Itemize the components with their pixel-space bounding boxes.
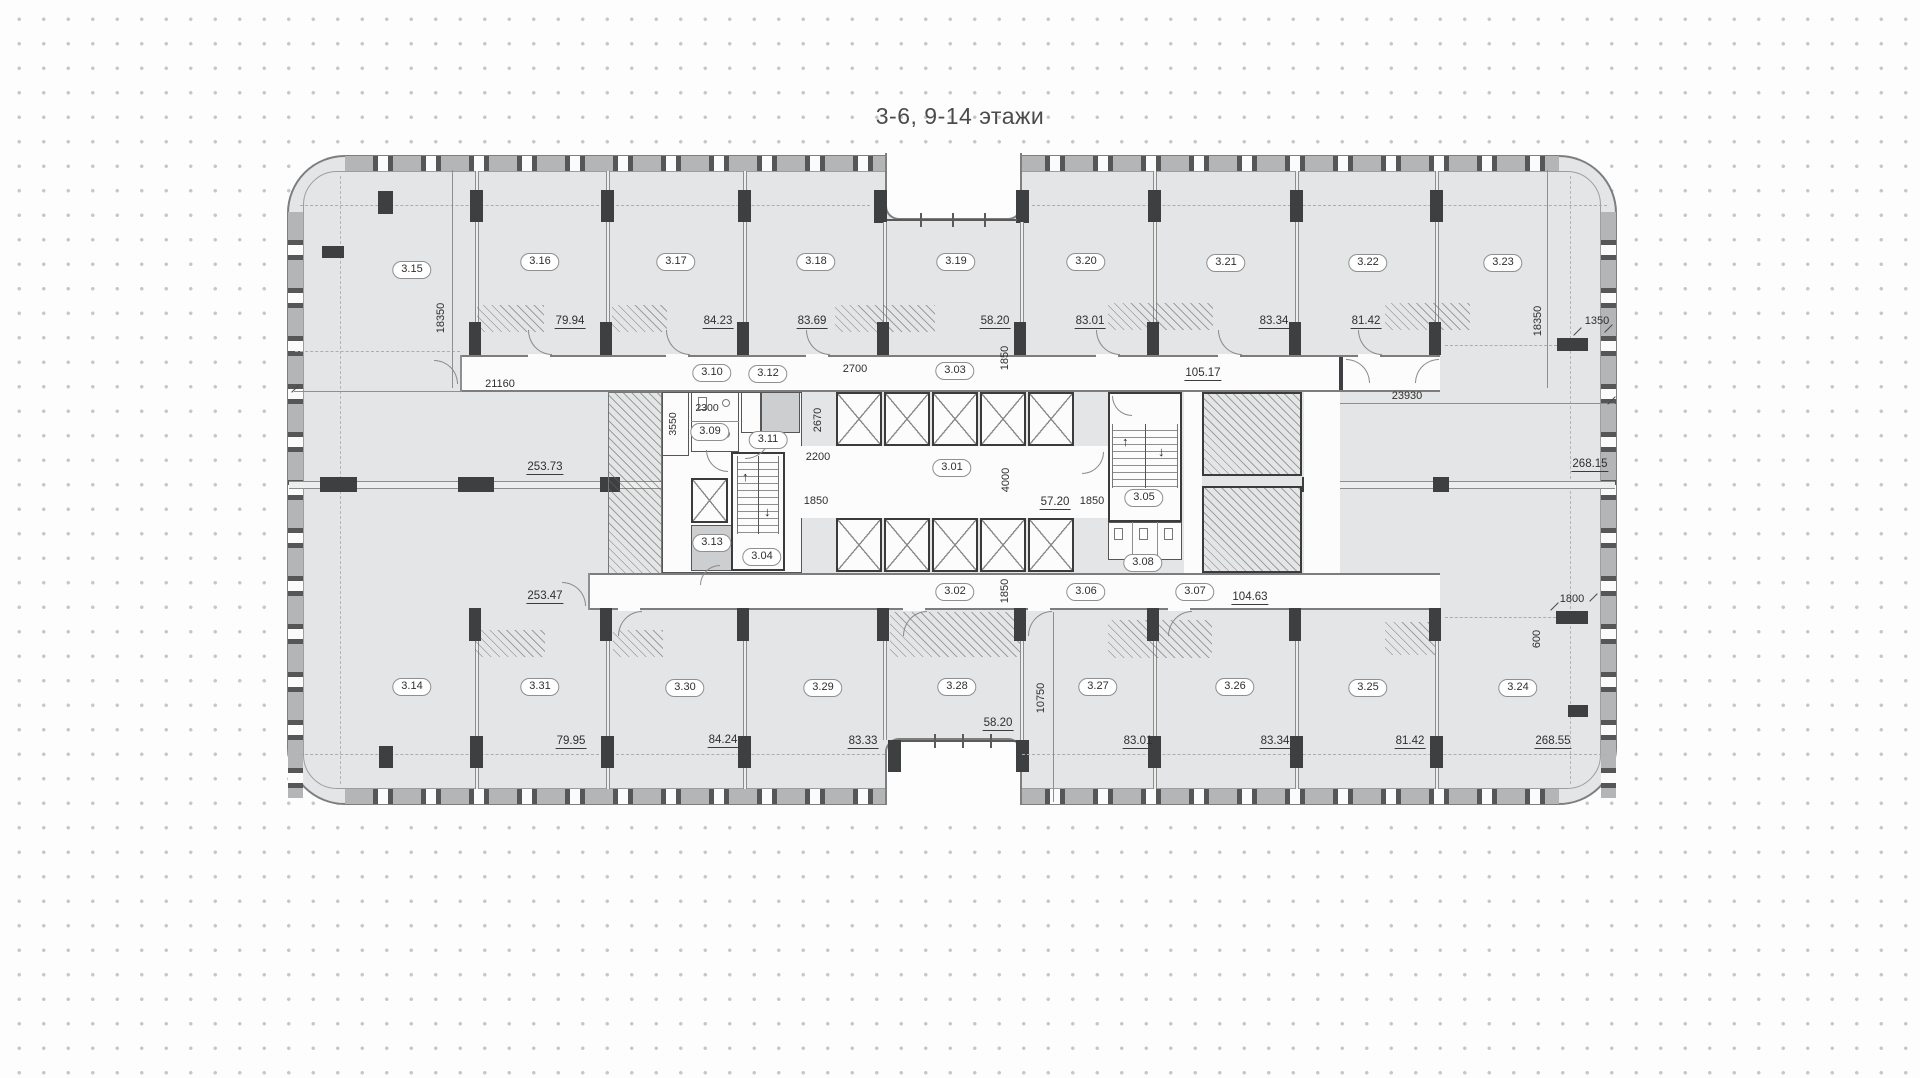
window-band-left [288,212,303,798]
stair-arrow-icon: ↑ [742,470,749,483]
pier [737,322,749,355]
elevator-hall [788,446,1078,518]
window-band-right [1601,212,1616,798]
room-label-3-24: 3.24 [1498,679,1537,697]
hatch-zone [477,305,544,332]
dim-2300: 2300 [695,402,718,414]
dim-line [1310,403,1615,404]
elevator-shaft [691,478,728,523]
railing-tick [952,213,954,227]
dim-2200: 2200 [806,451,830,463]
dim-line [1053,612,1054,802]
elevator-shaft [932,518,978,572]
room-label-3-21: 3.21 [1206,254,1245,272]
dim-1850: 1850 [999,346,1011,370]
room-label-3-01: 3.01 [932,459,971,477]
room-label-3-10: 3.10 [692,364,731,382]
pier [1014,608,1026,641]
room-label-3-16: 3.16 [520,253,559,271]
elevator-shaft [980,392,1026,446]
hatch-zone [1385,303,1470,330]
gridline [295,351,460,352]
column [601,190,614,222]
column [1557,338,1588,351]
pier [469,322,481,355]
pier [1289,322,1301,355]
stair-arrow-icon: ↓ [764,505,771,518]
area-label-3-17: 84.23 [703,315,734,329]
door-opening [1028,606,1050,611]
pier [1147,322,1159,355]
area-label-3-20: 83.01 [1075,315,1106,329]
stair-arrow-icon: ↓ [1158,445,1165,458]
area-label-3-26: 83.34 [1260,735,1291,749]
dim-23930: 23930 [1392,390,1423,402]
column [379,746,393,768]
column [470,190,483,222]
area-label-3-01: 57.20 [1040,496,1071,510]
pier [1016,190,1029,223]
area-label-3-19: 58.20 [980,315,1011,329]
door-opening [1358,354,1380,359]
pier [1147,608,1159,641]
pier [877,608,889,641]
elevator-shaft [884,392,930,446]
room-label-3-23: 3.23 [1483,254,1522,272]
wc-fixture [1114,528,1123,540]
service-room [741,392,761,433]
dim-line [1547,170,1548,388]
column [1430,190,1443,222]
column [738,190,751,222]
area-label-3-16: 79.94 [555,315,586,329]
dim-4000: 4000 [1000,468,1012,492]
stair-midline [1145,424,1146,488]
dim-1800: 1800 [1560,593,1584,605]
room-label-3-12: 3.12 [748,365,787,383]
dim-2700: 2700 [843,363,867,375]
pier [1429,322,1441,355]
room-label-3-11: 3.11 [749,431,788,449]
pier [1433,477,1449,492]
area-label-3-14: 253.47 [526,590,563,604]
door-opening [1096,354,1118,359]
room-label-3-20: 3.20 [1066,253,1105,271]
column [470,736,483,768]
door-opening [528,354,550,359]
room-label-3-05: 3.05 [1124,489,1163,507]
shaft-zone [608,392,662,574]
column [322,246,344,258]
stair-midline [758,456,759,534]
area-label-3-29: 83.33 [848,735,879,749]
pier [600,322,612,355]
room-label-3-22: 3.22 [1348,254,1387,272]
wall [460,355,462,392]
page-title: 3-6, 9-14 этажи [0,103,1920,130]
dim-1850: 1850 [999,579,1011,603]
area-label-3-24: 268.55 [1534,735,1571,749]
elevator-shaft [884,518,930,572]
pier [600,608,612,641]
pier [877,322,889,355]
pier [1429,608,1441,641]
railing [901,740,1016,742]
pier [458,477,494,492]
area-label-3-31: 79.95 [556,735,587,749]
area-label-3-22: 81.42 [1351,315,1382,329]
hatch-zone [1108,303,1213,330]
column [1568,705,1588,717]
room-label-3-28: 3.28 [937,678,976,696]
room-label-3-31: 3.31 [520,678,559,696]
room-label-3-27: 3.27 [1078,678,1117,696]
room-label-3-14: 3.14 [392,678,431,696]
area-label-corridor-bottom: 104.63 [1231,591,1268,605]
hatch-zone [612,305,667,332]
pier [1014,322,1026,355]
room-label-3-08: 3.08 [1123,554,1162,572]
room-label-3-29: 3.29 [803,679,842,697]
pier [1016,740,1029,772]
door-opening [1218,354,1240,359]
gridline [1022,754,1607,755]
room-label-3-26: 3.26 [1215,678,1254,696]
column [378,191,393,214]
dim-18350-right: 18350 [1532,306,1544,337]
hatch-zone [1108,620,1212,658]
dim-600: 600 [1531,630,1543,648]
pier [469,608,481,641]
wall [691,421,739,422]
service-room [761,392,800,433]
column [601,736,614,768]
room-label-3-09: 3.09 [690,423,729,441]
gridline [1445,617,1556,618]
hatch-zone [475,630,545,657]
railing-tick [990,734,992,748]
elevator-shaft [1028,392,1074,446]
wc-fixture [1139,528,1148,540]
dim-2670: 2670 [812,408,824,432]
facade-notch-top [885,153,1022,220]
room-label-3-06: 3.06 [1066,583,1105,601]
elevator-shaft [932,392,978,446]
railing-tick [962,734,964,748]
area-label-3-25: 81.42 [1395,735,1426,749]
room-label-3-17: 3.17 [656,253,695,271]
dim-3550: 3550 [667,412,679,435]
area-label-3-18: 83.69 [797,315,828,329]
gridline [1570,176,1571,784]
wc-fixture [1164,528,1173,540]
door-opening [1168,606,1190,611]
room-label-3-19: 3.19 [936,253,975,271]
room-label-3-07: 3.07 [1175,583,1214,601]
room-label-3-02: 3.02 [935,583,974,601]
passage [1184,392,1202,573]
column [738,736,751,768]
wc-fixture [722,399,730,407]
dim-1850: 1850 [1080,495,1104,507]
elevator-shaft [836,518,882,572]
wall [588,573,590,610]
wall [1302,481,1615,489]
area-label-3-30: 84.24 [708,734,739,748]
elevator-shaft [836,392,882,446]
hatch-zone [1385,622,1435,655]
area-label-3-23: 268.15 [1571,458,1608,472]
railing-tick [934,734,936,748]
room-label-3-15: 3.15 [392,261,431,279]
column [1430,736,1443,768]
pier [737,608,749,641]
area-label-corridor-top: 105.17 [1184,367,1221,381]
room-label-3-18: 3.18 [796,253,835,271]
door-opening [618,606,640,611]
column [1290,736,1303,768]
gridline [1445,345,1557,346]
room-label-3-04: 3.04 [742,548,781,566]
dim-1850: 1850 [804,495,828,507]
pier [888,740,901,772]
shaft-zone [1202,392,1302,476]
shaft-zone [1202,486,1302,573]
dim-21160: 21160 [485,378,515,390]
column [1556,611,1588,624]
room-label-3-25: 3.25 [1348,679,1387,697]
pier [1289,608,1301,641]
dim-line [452,170,453,388]
dim-10750: 10750 [1035,683,1047,714]
area-label-3-15: 253.73 [526,461,563,475]
area-label-3-28: 58.20 [983,717,1014,731]
passage [1304,392,1340,573]
railing-tick [920,213,922,227]
area-label-3-21: 83.34 [1259,315,1290,329]
facade-notch-bottom [885,738,1022,805]
stair-arrow-icon: ↑ [1122,435,1129,448]
column [1148,190,1161,222]
dim-18350-left: 18350 [435,303,447,334]
door-opening [903,606,925,611]
door-opening [666,354,688,359]
pier [874,190,887,223]
area-label-3-27: 83.01 [1123,735,1154,749]
pier [320,477,357,492]
elevator-shaft [1028,518,1074,572]
railing-tick [984,213,986,227]
wall [1339,357,1343,390]
room-label-3-13: 3.13 [692,534,731,552]
column [1290,190,1303,222]
room-label-3-03: 3.03 [935,362,974,380]
door-opening [806,354,828,359]
dim-1350: 1350 [1585,315,1609,327]
gridline [1032,205,1607,206]
elevator-shaft [980,518,1026,572]
room-label-3-30: 3.30 [665,679,704,697]
